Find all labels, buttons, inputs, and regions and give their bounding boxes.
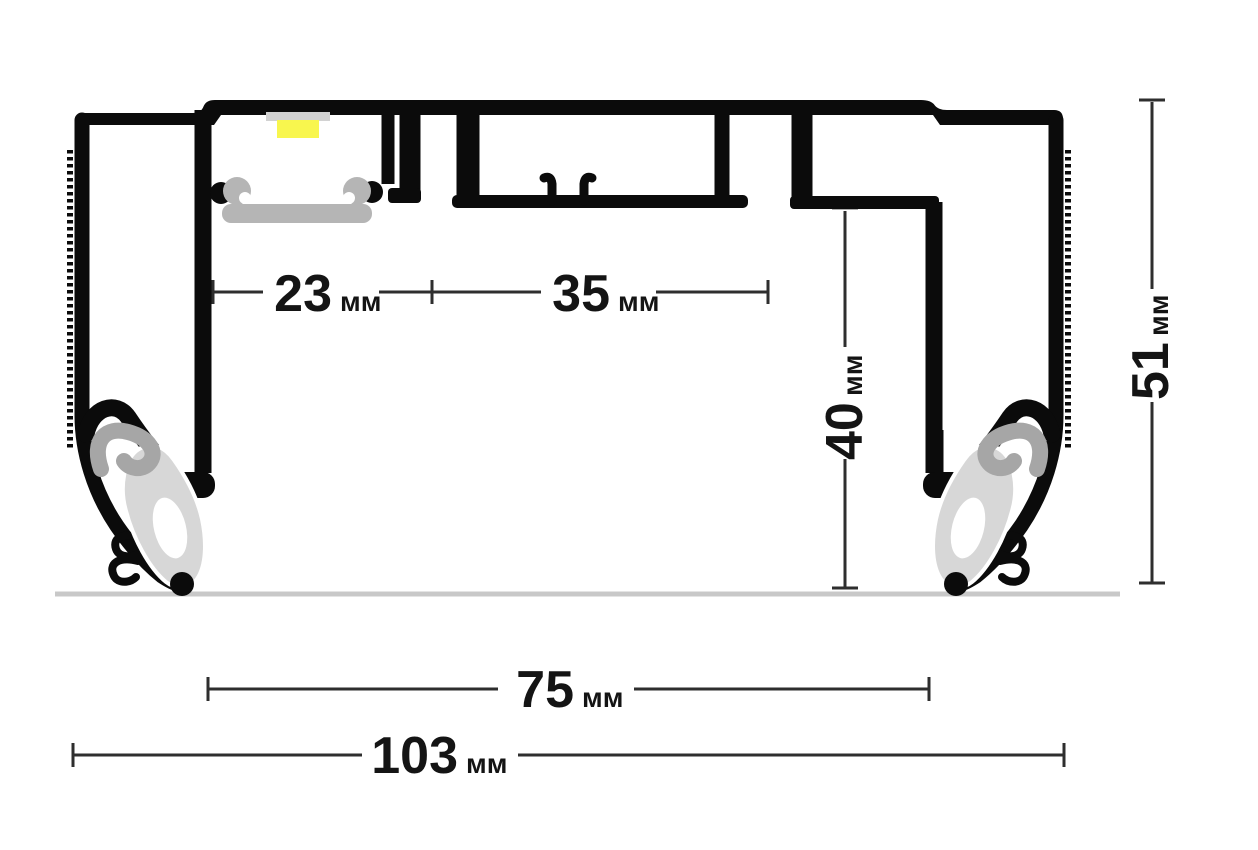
dim-unit-label: мм [1143,295,1174,336]
led-pcb [266,112,330,121]
dim-value: 35 [552,265,610,323]
dimension-35mm: 35 мм [433,265,768,323]
dim-unit-label: мм [837,355,868,396]
profile-cross-section-drawing: 23 мм 35 мм 40 мм 51 мм 7 [0,0,1258,850]
dim-value: 103 [371,727,458,785]
led-module [266,112,330,138]
dimension-40mm: 40 мм [816,208,874,588]
dim-unit-label: мм [466,748,507,779]
dim-value: 40 [816,402,874,460]
mounting-clip-right [923,120,1068,596]
diffuser-lens [222,177,372,223]
led-emitter [277,120,319,138]
dim-value: 23 [274,265,332,323]
diffuser-curl-left-gap [239,192,251,204]
mounting-clip-left [70,120,215,596]
dim-unit-label: мм [340,286,381,317]
dim-unit-label: мм [618,286,659,317]
dimension-75mm: 75 мм [208,661,929,719]
dim-value: 75 [516,661,574,719]
dimension-23mm: 23 мм [213,265,432,323]
upright-a-foot [388,188,421,203]
diffuser-curl-right-gap [343,192,355,204]
top-cap [75,100,1063,125]
center-bottom-rail [452,195,748,208]
right-ledge [790,196,939,209]
drawing-canvas: 23 мм 35 мм 40 мм 51 мм 7 [0,0,1258,850]
dim-unit-label: мм [582,682,623,713]
dim-value: 51 [1122,342,1180,400]
diffuser-plate [222,204,372,223]
dimension-103mm: 103 мм [73,727,1064,785]
dimension-51mm: 51 мм [1122,100,1180,583]
